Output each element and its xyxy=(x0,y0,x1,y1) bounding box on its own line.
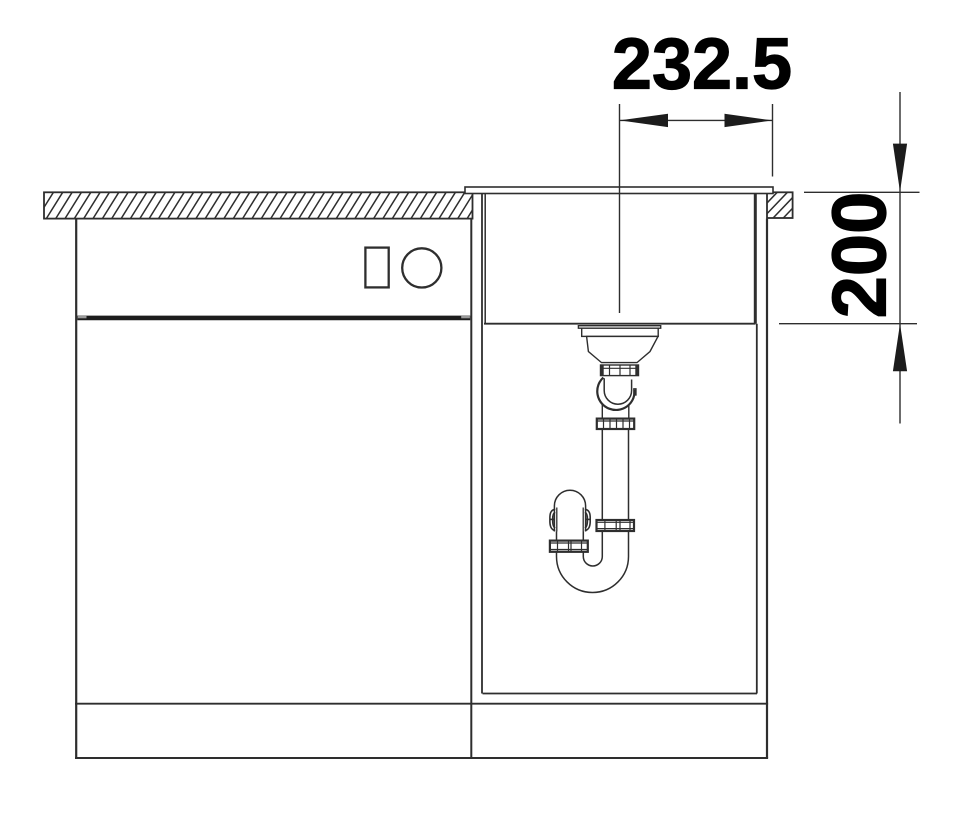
svg-text:232.5: 232.5 xyxy=(612,24,792,104)
svg-text:200: 200 xyxy=(818,192,903,319)
